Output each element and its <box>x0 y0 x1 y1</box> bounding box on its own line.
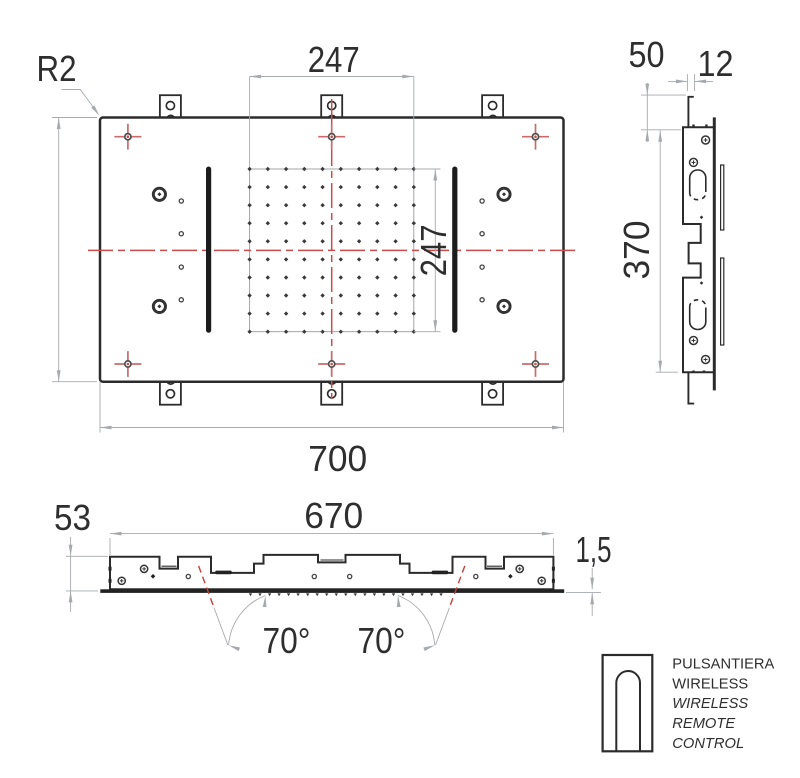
svg-text:WIRELESS: WIRELESS <box>672 696 748 712</box>
svg-text:700: 700 <box>308 438 367 479</box>
svg-text:53: 53 <box>54 497 91 538</box>
svg-text:CONTROL: CONTROL <box>672 736 744 752</box>
svg-text:50: 50 <box>629 34 665 75</box>
svg-text:PULSANTIERA: PULSANTIERA <box>672 656 774 672</box>
svg-text:REMOTE: REMOTE <box>672 716 735 732</box>
svg-text:670: 670 <box>304 495 363 536</box>
svg-text:370: 370 <box>616 221 657 280</box>
svg-text:1,5: 1,5 <box>576 529 612 570</box>
svg-text:R2: R2 <box>37 48 77 89</box>
svg-text:12: 12 <box>698 43 734 84</box>
svg-text:247: 247 <box>413 224 454 276</box>
svg-text:70°: 70° <box>263 620 311 661</box>
svg-text:247: 247 <box>308 39 360 80</box>
svg-text:WIRELESS: WIRELESS <box>672 676 748 692</box>
svg-text:70°: 70° <box>358 620 406 661</box>
